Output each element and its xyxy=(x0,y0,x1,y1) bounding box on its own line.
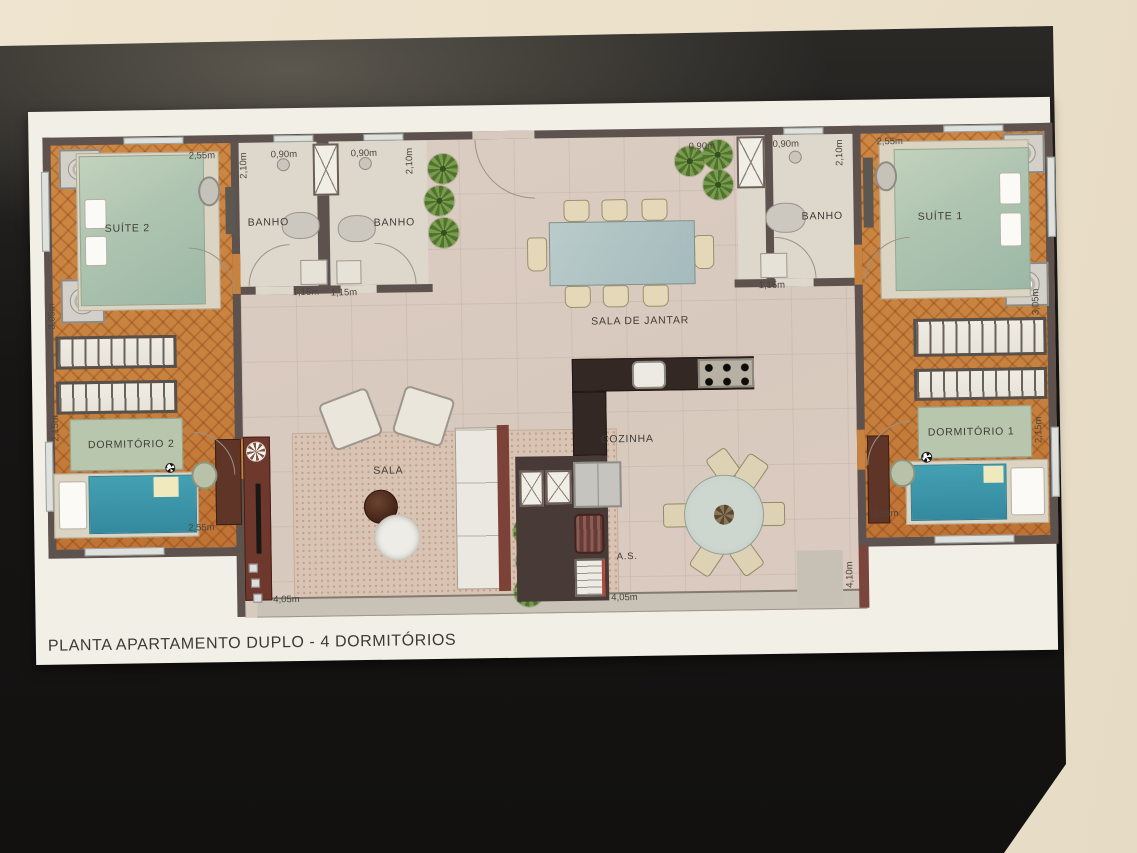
dim-suite2-width: 2,55m xyxy=(189,151,216,161)
banho-left1-shower xyxy=(300,260,327,285)
banho-right-top-window xyxy=(783,127,823,135)
dining-chair xyxy=(527,237,548,271)
balcony-gray-area xyxy=(797,550,844,607)
suite2-pillow-1 xyxy=(84,199,106,229)
plan-title: PLANTA APARTAMENTO DUPLO - 4 DORMITÓRIOS xyxy=(48,632,457,656)
left-shaft xyxy=(313,143,340,195)
suite1-vanity xyxy=(863,157,874,227)
dim-center-top-width: 0,90m xyxy=(689,142,716,152)
area-servico-label: A.S. xyxy=(617,551,638,563)
banho-left2-shower xyxy=(336,260,361,284)
suite2-pillow-2 xyxy=(85,236,107,266)
right-wardrobe-1 xyxy=(913,317,1047,357)
dining-chair xyxy=(643,285,669,307)
suite1-window xyxy=(1047,157,1056,237)
sala-label: SALA xyxy=(373,464,403,477)
decor-object xyxy=(251,579,260,588)
dorm1-pillow xyxy=(1010,467,1045,515)
suite1-pillow-2 xyxy=(1000,212,1023,246)
dim-dorm2-width: 2,55m xyxy=(188,523,215,533)
dim-suite2-depth: 3,05m xyxy=(47,303,57,330)
dim-terrace-depth: 4,10m xyxy=(845,561,855,588)
suite2-window xyxy=(41,172,50,252)
dim-banho-left1-shower: 1,15m xyxy=(293,288,320,298)
dorm1-door-opening xyxy=(857,430,866,470)
suite1-door-opening xyxy=(854,245,863,285)
decor-object xyxy=(253,594,262,603)
wall-right-balcony-side xyxy=(859,546,870,608)
banho-right-toilet xyxy=(765,202,805,233)
dining-chair xyxy=(641,199,667,221)
dining-chair xyxy=(694,235,715,269)
kitchen-counter-side xyxy=(572,391,607,455)
dim-suite1-width: 2,55m xyxy=(876,137,903,147)
dining-chair xyxy=(601,199,627,221)
dormitorio2-label: DORMITÓRIO 2 xyxy=(88,438,175,452)
cozinha-label: COZINHA xyxy=(601,433,654,446)
dorm1-bottom-window xyxy=(934,534,1014,543)
sala-de-jantar-label: SALA DE JANTAR xyxy=(591,314,689,328)
refrigerator xyxy=(573,461,622,508)
dorm1-window xyxy=(1051,427,1060,497)
dim-dorm1-depth: 2,15m xyxy=(1034,417,1044,444)
suite2-label: SUÍTE 2 xyxy=(105,222,150,235)
banho-left1-door-opening xyxy=(256,286,294,295)
dorm2-blanket-fold xyxy=(153,477,178,497)
kitchen-sink xyxy=(632,361,666,390)
dim-dorm1-width: 2,55m xyxy=(872,509,899,519)
soccer-ball-dorm2 xyxy=(165,463,175,473)
floor-plan-sheet: SUÍTE 2 BANHO BANHO SALA DE JANTAR BANHO… xyxy=(28,97,1058,665)
left-wardrobe-2 xyxy=(56,380,177,415)
suite1-label: SUÍTE 1 xyxy=(918,210,963,223)
banho-left1-label: BANHO xyxy=(248,216,290,229)
sofa-backrest xyxy=(497,425,511,591)
sofa xyxy=(455,427,501,590)
banho-right-label: BANHO xyxy=(802,210,844,223)
floor-plan: SUÍTE 2 BANHO BANHO SALA DE JANTAR BANHO… xyxy=(28,97,1058,665)
dining-table xyxy=(549,220,696,286)
dorm2-bottom-window xyxy=(84,547,164,556)
dim-banho-left1-depth: 2,10m xyxy=(239,152,249,179)
service-shaft-2 xyxy=(545,470,572,504)
dorm2-bed-blanket xyxy=(88,475,197,535)
photo-of-floor-plan-poster: SUÍTE 2 BANHO BANHO SALA DE JANTAR BANHO… xyxy=(0,0,1137,853)
dining-chair xyxy=(603,285,629,307)
banho-right-sink xyxy=(789,151,802,164)
suite1-pillow-1 xyxy=(999,172,1021,204)
banho-left2-top-window xyxy=(363,133,403,141)
dining-chair xyxy=(565,286,591,308)
tv-panel xyxy=(256,484,262,554)
banho-left2-label: BANHO xyxy=(374,216,416,229)
banho-left1-top-window xyxy=(273,135,313,143)
dorm1-blanket-fold xyxy=(983,466,1003,483)
dim-banho-left1-width: 0,90m xyxy=(271,150,298,160)
dim-banho-right-width: 0,90m xyxy=(772,140,799,150)
dim-banho-left2-depth: 2,10m xyxy=(405,148,415,175)
suite1-top-window xyxy=(943,125,1003,133)
dim-dorm2-depth: 2,15m xyxy=(51,415,61,442)
dim-banho-left2-shower: 1,15m xyxy=(331,288,358,298)
decor-object xyxy=(249,564,258,573)
dim-sala-width: 4,05m xyxy=(273,595,300,605)
suite1-vanity-stool xyxy=(875,161,897,191)
suite2-top-window xyxy=(123,137,183,145)
service-shaft-1 xyxy=(519,470,544,506)
left-wardrobe-1 xyxy=(55,335,176,370)
washing-machine xyxy=(574,513,605,553)
dim-service-width: 4,05m xyxy=(611,593,638,603)
right-shaft xyxy=(736,136,765,188)
dim-banho-right-shower: 1,15m xyxy=(759,281,786,291)
suite2-vanity-stool xyxy=(198,176,220,206)
dining-chair xyxy=(563,200,589,222)
dim-banho-right-depth: 2,10m xyxy=(835,139,845,166)
right-wardrobe-2 xyxy=(914,367,1047,401)
kitchen-cooktop xyxy=(698,358,754,388)
dorm2-pillow xyxy=(58,481,87,529)
dormitorio1-label: DORMITÓRIO 1 xyxy=(928,425,1015,439)
dim-suite1-depth: 3,05m xyxy=(1031,289,1041,316)
drying-rack xyxy=(575,558,606,596)
suite2-vanity xyxy=(225,187,236,234)
banho-left2-toilet xyxy=(338,215,376,243)
dim-banho-left2-width: 0,90m xyxy=(351,149,378,159)
